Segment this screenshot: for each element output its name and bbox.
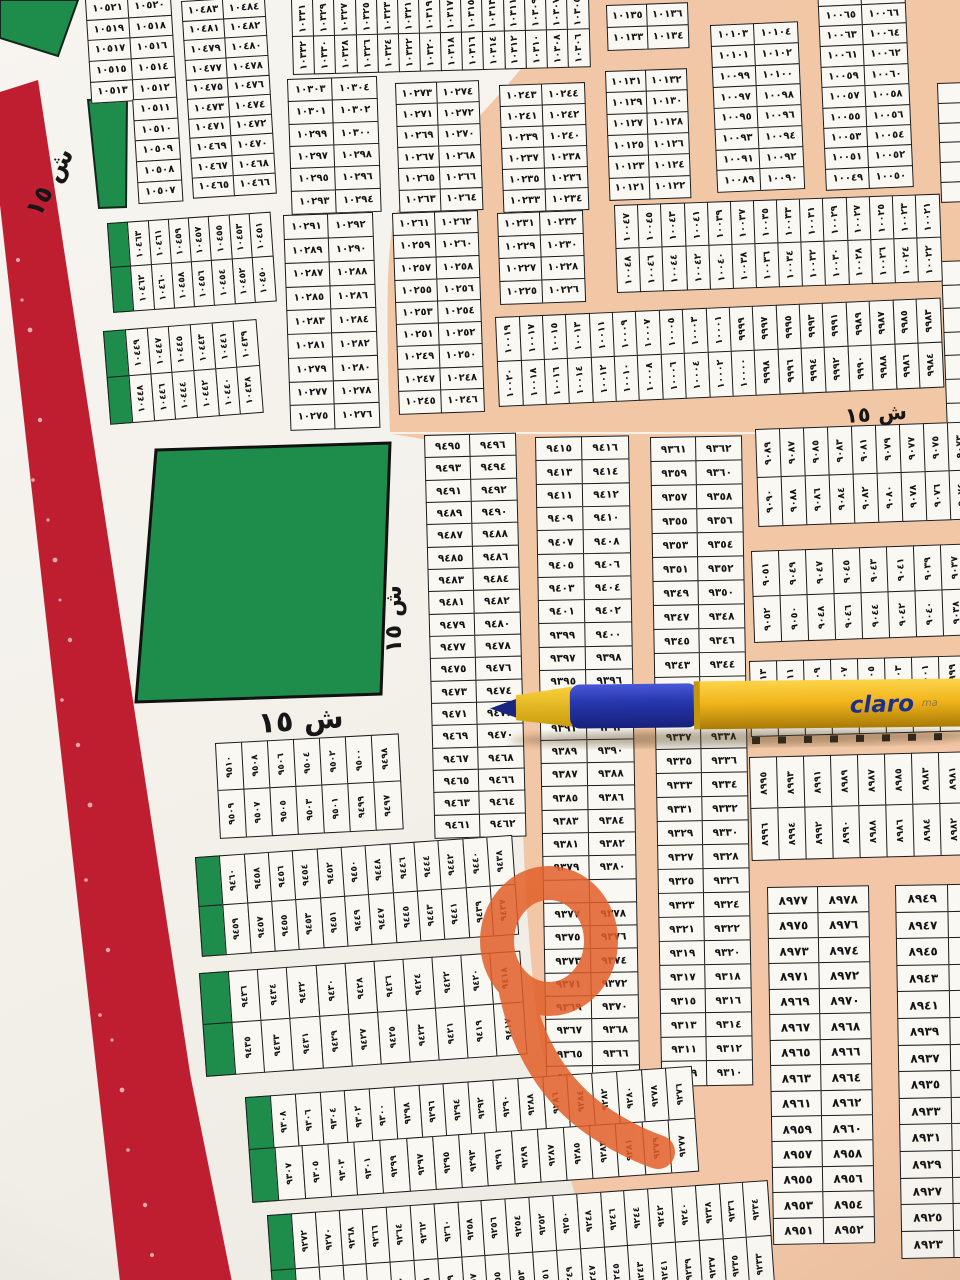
plot-number: ٩٣٩٨	[596, 652, 622, 663]
plot-number: ١٠٢٥٤	[444, 306, 475, 317]
plot-number: ١٠٠٣٢	[809, 249, 820, 278]
plot-number: ٨٩٨٥	[894, 768, 904, 791]
plot-number: ٩٢٩٦	[428, 1100, 439, 1123]
plot-cell: ٩٤٦٧	[432, 746, 479, 771]
plot-number: ٩٣٥٢	[708, 563, 734, 574]
plot-number: ١٠٤٧٩	[190, 44, 221, 56]
plot-cell: ٨٩٩٤	[777, 807, 807, 860]
plot-number: ٩٠٨٨	[789, 489, 799, 513]
plot-number: ١٠٢٤٣	[506, 90, 537, 101]
plot-number: ٩٤٣٣	[273, 1034, 284, 1057]
plot-number: ٩٣٧٤	[601, 955, 627, 966]
plot-cell: ٩٣٨٢	[588, 831, 636, 857]
plot-cell: ١٠٣١٠	[525, 29, 549, 68]
plot-number: ١٠١٢٢	[655, 182, 686, 193]
plot-number: ٩٤٤٠	[471, 852, 482, 875]
plot-cell: ٩٣١٤	[705, 1011, 752, 1037]
plot-cell: ١٠٣٢٧	[333, 0, 357, 37]
plot-cell: ٩٤١٥	[535, 436, 583, 462]
plot-number: ٩٣٧٩	[554, 863, 580, 874]
plot-row: ٩٣١٥٩٣١٦	[661, 988, 751, 1014]
plot-cell: ٩٣٤٤	[699, 652, 746, 678]
plot-number: ٩٢٥٣	[518, 1270, 529, 1280]
plot-number: ٩٤٣١	[302, 1032, 313, 1055]
plot-cell: ٩٤٦٢	[479, 812, 526, 837]
plot-number: ١٠٣١٤	[489, 36, 499, 65]
plot-number: ٩٤٧٩	[439, 620, 465, 631]
plot-number: ١٠٢٧٢	[443, 108, 474, 119]
plot-number: ٩٣٣٤	[712, 779, 738, 790]
plot-cell: ٩٣٦٢	[695, 436, 742, 462]
plot-cell: ٩٣٧٧	[543, 902, 591, 928]
plot-cell: ١٠٣٠٧	[545, 0, 569, 31]
plot-number: ٨٩٨٩	[840, 769, 850, 792]
plot-cell: ٩٤١٢	[582, 482, 630, 508]
plot-number: ١٠٤٧٧	[191, 63, 222, 75]
plot-cell: ٩٠٥١	[751, 550, 781, 598]
plot-number: ٩٠٧٧	[908, 437, 918, 461]
plot-number: ٩٣٣٥	[666, 756, 692, 767]
plot-number: ٩٠٣٩	[923, 557, 933, 581]
plot-cell: ٩٤١٧	[493, 1002, 527, 1057]
strip-10460: ١٠٤٦٣١٠٤٦١١٠٤٥٩١٠٤٥٧١٠٤٥٥١٠٤٥٣١٠٤٥١١٠٤٦٢…	[108, 213, 276, 312]
plot-number: ١٠٢٢٨	[547, 262, 578, 273]
plot-number: ١٠١٣٢	[651, 75, 682, 86]
plot-cell: ٩٣٤٨	[698, 604, 745, 630]
plot-cell: ٩٣٥٤	[697, 532, 744, 558]
plot-number: ٩٤٢٨	[356, 977, 367, 1000]
blank-plot-cell	[944, 355, 960, 381]
plot-number: ٩٤٢٣	[418, 1024, 429, 1047]
plot-number: ٩٣٢٣	[669, 900, 695, 911]
plot-number: ١٠٢٨٠	[340, 363, 371, 374]
plot-number: ٩٣٧١	[556, 979, 582, 990]
plot-cell: ١٠٢٦٣	[399, 188, 442, 212]
plot-number: ٨٩٨١	[948, 766, 958, 789]
plot-number: ٨٩٥٥	[783, 1174, 813, 1187]
plot-cell: ٩٠٤٩	[778, 549, 808, 597]
plot-number: ١٠٠٦٦	[868, 8, 899, 19]
plot-row: ١٠٢٤٥١٠٢٤٦	[399, 389, 484, 414]
plot-cell: ٨٩٢٦	[953, 1202, 960, 1231]
plot-cell: ٨٩٥٤	[822, 1190, 874, 1218]
plot-number: ٨٩٩٢	[814, 821, 824, 844]
plot-number: ١٠١٣٣	[613, 33, 644, 44]
plot-number: ٩٣٤٦	[709, 635, 735, 646]
plot-number: ١٠٢٤٤	[548, 89, 579, 100]
plot-cell: ٨٩٥٦	[822, 1165, 874, 1193]
block-10500: ١٠٥٢١١٠٥٢٠١٠٥١٩١٠٥١٨١٠٥١٧١٠٥١٦١٠٥١٥١٠٥١٤…	[86, 0, 182, 206]
plot-cell: ١٠٣٢٤	[377, 33, 401, 72]
plot-number: ١٠٠٤٢	[693, 253, 704, 282]
plot-number: ٩٢٥٦	[490, 1216, 501, 1239]
plot-cell: ٩٣٧٤	[590, 948, 638, 974]
plot-number: ٩٠٥٢	[763, 607, 773, 631]
block-10280: ١٠٢٩١١٠٢٩٢١٠٢٨٩١٠٢٩٠١٠٢٨٧١٠٢٨٨١٠٢٨٥١٠٢٨٦…	[284, 213, 379, 430]
street-15-right: ش ١٥	[844, 400, 907, 428]
plot-cell: ٩٣٦٧	[545, 1018, 593, 1044]
plot-number: ١٠٠٥٢	[875, 151, 906, 162]
plot-number: ٩٠٤٧	[815, 560, 825, 584]
plot-cell: ٨٩٣٢	[951, 1122, 960, 1151]
plot-cell: ٨٩٤٦	[948, 936, 960, 965]
plot-cell: ٩٣٢١	[659, 916, 706, 942]
plot-number: ١٠٠١٤	[575, 366, 586, 395]
plot-cell: ١٠٥٠٧	[137, 179, 183, 204]
plot-row: ٩٣٦٩٩٣٧٠	[546, 995, 638, 1020]
plot-cell: ٩٣٥٣	[652, 532, 699, 558]
plot-number: ٨٩٤٧	[908, 919, 938, 932]
plot-number: ٩٤٩١	[436, 486, 462, 497]
plot-number: ١٠١٣٤	[653, 31, 684, 42]
plot-number: ١٠٢٥٥	[401, 285, 432, 296]
plot-number: ٨٩٨٣	[921, 767, 931, 790]
plot-number: ١٠٠٩٠	[767, 173, 798, 184]
plot-cell: ١٠٣١٤	[482, 31, 506, 70]
strip-9040: ٩٠٥١٩٠٤٩٩٠٤٧٩٠٤٥٩٠٤٣٩٠٤١٩٠٣٩٩٠٣٧٩٠٥٢٩٠٥٠…	[752, 544, 960, 641]
plot-number: ٩٤١١	[547, 490, 573, 501]
plot-number: ١٠٢٤٢	[549, 110, 580, 121]
plot-row: ٩٤٠١٩٤٠٢	[539, 599, 631, 624]
plot-number: ١٠٣٠٧	[552, 0, 562, 26]
plot-row: ٩٣١٧٩٣١٨	[660, 964, 750, 990]
plot-number: ٩٣٤٩	[663, 588, 689, 599]
plot-cell: ٩٣٢٠	[704, 939, 751, 965]
plot-number: ١٠٠٩٣	[722, 133, 753, 144]
plot-row: ٨٩٩٦٨٩٩٤٨٩٩٢٨٩٩٠٨٩٨٨٨٩٨٦٨٩٨٤٨٩٨٢	[751, 803, 960, 860]
plot-cell: ٩٤١١	[536, 483, 584, 509]
blank-plot-cell	[942, 284, 960, 310]
plot-cell: ١٠٣٢٠	[419, 32, 443, 71]
plot-number: ١٠٢٨٥	[293, 293, 324, 304]
plot-number: ١٠٢٧٤	[442, 87, 473, 98]
plot-row: ٨٩٦٥٨٩٦٦	[771, 1039, 871, 1066]
plot-number: ١٠٢٨٦	[337, 291, 368, 302]
plot-number: ٨٩٢٩	[912, 1158, 942, 1171]
plot-number: ١٠٤٤٣	[198, 333, 209, 361]
plot-row: ١٠٠٤٨١٠٠٤٦١٠٠٤٤١٠٠٤٢١٠٠٤٠١٠٠٣٨١٠٠٣٦١٠٠٣٤…	[617, 238, 942, 292]
plot-cell: ١٠٣١٧	[439, 0, 463, 34]
plot-number: ٩٤١٦	[592, 443, 618, 454]
plot-cell: ٨٩٥١	[773, 1217, 825, 1245]
plot-number: ١٠٣٠٥	[573, 0, 583, 26]
plot-row: ٩٣٢٥٩٣٢٦	[659, 868, 749, 894]
plot-number: ٩٣١٤	[716, 1019, 742, 1030]
plot-number: ١٠٢٧١	[402, 110, 433, 121]
plot-number: ١٠٢٥١	[403, 330, 434, 341]
plot-row: ٩٥٠٩٩٥٠٧٩٥٠٥٩٥٠٣٩٥٠١٩٤٩٩٩٤٩٧	[218, 781, 402, 837]
plot-cell: ٩٣٦٨	[591, 1017, 639, 1043]
plot-cell: ٨٩٧٣	[768, 937, 820, 965]
strip-9450: ٩٤٦٠٩٤٥٨٩٤٥٦٩٤٥٤٩٤٥٢٩٤٥٠٩٤٤٨٩٤٤٦٩٤٤٤٩٤٤٢…	[196, 836, 518, 956]
plot-cell: ٩٠٧٤	[949, 470, 960, 521]
plot-cell: ٩٤١٤	[582, 459, 630, 485]
plot-row: ٩٤١٣٩٤١٤	[536, 460, 628, 485]
plot-cell: ٩٤٩٦	[469, 433, 516, 458]
plot-cell: ٩٣٧٨	[589, 901, 637, 927]
plot-number: ١٠٢٨٨	[337, 268, 368, 279]
plot-row: ٩٤٠٥٩٤٠٦	[538, 553, 630, 578]
plot-number: ٩٢٩٣	[469, 1149, 480, 1172]
plot-number: ٩٢٤٥	[613, 1263, 624, 1280]
plot-number: ٩٣٥٨	[707, 491, 733, 502]
plot-number: ٩٤٥٨	[253, 867, 264, 890]
plot-number: ١٠٠١٨	[529, 368, 540, 397]
plot-number: ١٠٣٠٦	[574, 33, 584, 62]
plot-cell: ٩٣٢٢	[704, 915, 751, 941]
plot-number: ٩٣٥٧	[662, 492, 688, 503]
plot-cell: ٨٩٧٢	[818, 962, 870, 990]
plot-cell: ٩٣٥١	[652, 556, 699, 582]
plot-cell: ٩٤٩٧	[373, 781, 403, 831]
plot-row: ١٠٢٩٣١٠٢٩٤	[292, 189, 381, 214]
plot-cell: ١٠٣١٦	[461, 31, 485, 70]
plot-number: ٩٤٤٢	[447, 853, 458, 876]
plot-number: ١٠٢٩١	[291, 222, 322, 233]
plot-cell: ٩٣٢٧	[657, 844, 704, 870]
plot-row: ٨٩٤٩٨٩٥٠	[896, 884, 960, 912]
plot-cell: ١٠٣٢٨	[334, 34, 358, 73]
plot-number: ١٠٢٦٢	[441, 217, 472, 228]
plot-number: ٩٤٠٤	[595, 583, 621, 594]
plot-number: ١٠٥١٧	[95, 44, 126, 56]
plot-number: ١٠٢٩٢	[335, 220, 366, 231]
plot-number: ١٠٤٦٣	[134, 230, 145, 258]
plot-number: ٨٩٥٤	[834, 1198, 864, 1211]
plot-number: ٩٤٨٢	[484, 596, 510, 607]
plot-number: ٩٣٠٤	[329, 1107, 340, 1130]
plot-number: ١٠٥١٠	[141, 124, 172, 136]
plot-number: ٩٤٨٤	[483, 574, 509, 585]
plot-number: ٩٩٨٩	[854, 312, 865, 336]
plot-number: ٩٠٩٠	[765, 490, 775, 514]
plot-number: ١٠٤٥٢	[238, 267, 249, 295]
plot-number: ٩٣٧٠	[602, 1002, 628, 1013]
plot-number: ٩٢٨٥	[573, 1142, 584, 1165]
plot-number: ٨٩٨٧	[867, 769, 877, 792]
plot-number: ٩٤١٠	[593, 513, 619, 524]
plot-number: ٩٠٤٢	[898, 603, 908, 627]
plot-row: ٩٣٥٥٩٣٥٦	[652, 508, 742, 534]
plot-cell: ٩٣١٦	[705, 987, 752, 1013]
plot-cell: ٨٩٩٠	[831, 805, 861, 858]
plot-number: ٨٩٦٣	[782, 1072, 812, 1085]
plot-number: ٩٤٩٩	[357, 796, 367, 818]
plot-row: ٩٣١١٩٣١٢	[661, 1036, 751, 1062]
plot-cell: ٩٤٨٩	[426, 501, 473, 526]
plot-number: ٩٣٠٨	[280, 1110, 291, 1133]
plot-number: ٩٠٧٨	[909, 485, 919, 509]
blank-plot-cell	[945, 378, 960, 404]
plot-cell: ١٠٤٥٠	[252, 256, 277, 303]
plot-cell: ٩٣١١	[661, 1036, 708, 1062]
plot-cell: ٨٩٤١	[897, 991, 951, 1020]
plot-cell: ٩٤١٦	[581, 436, 629, 462]
plot-number: ٩٠٧٩	[884, 438, 894, 462]
plot-number: ١٠١٢٨	[652, 118, 683, 129]
pen-grip	[570, 683, 698, 728]
plot-cell: ٨٩٦٣	[770, 1064, 822, 1092]
plot-number: ٩٢٦٠	[443, 1220, 454, 1243]
plot-number: ١٠٠٢٨	[855, 247, 866, 276]
plot-cell: ٩٣٨٥	[541, 786, 589, 812]
plot-row: ٩٣٤٣٩٣٤٤	[655, 652, 745, 678]
plot-number: ٩٤٩٣	[435, 463, 461, 474]
plot-cell: ٩٤٧٥	[430, 657, 477, 682]
plot-number: ٩٣١٠	[717, 1067, 743, 1078]
plot-number: ١٠٠٤٨	[624, 255, 635, 284]
plot-number: ٩٤٥٢	[326, 862, 337, 885]
plot-cell: ٩٣٣٤	[701, 772, 748, 798]
plot-row: ٩٣٣١٩٣٣٢	[657, 796, 747, 822]
plot-number: ١٠٤٤٠	[223, 377, 234, 405]
plot-number: ١٠٤٤٧	[154, 337, 165, 365]
plot-number: ١٠٢٧٦	[342, 410, 373, 421]
plot-number: ٩٠٤٥	[842, 559, 852, 583]
plot-number: ٩٤٣٨	[496, 850, 507, 873]
plot-cell: ٩٣٥٠	[698, 580, 745, 606]
plot-number: ٩٤٠١	[549, 607, 575, 618]
plot-number: ١٠٣٠٩	[530, 0, 540, 27]
plot-row: ٩٣٩٧٩٣٩٨	[540, 646, 632, 671]
plot-cell: ٩٠٣٧	[940, 544, 960, 592]
plot-number: ١٠٣١٨	[447, 37, 457, 66]
street-15-mid-vertical: ش ١٥	[381, 585, 407, 653]
plot-number: ١٠٠٩٩	[719, 71, 750, 82]
plot-cell: ١٠٠٨٩	[716, 168, 762, 192]
plot-number: ١٠٥١٦	[136, 42, 167, 54]
plot-number: ٩٤٣٢	[298, 981, 309, 1004]
plot-number: ٩٤٧٨	[485, 641, 511, 652]
plot-number: ١٠٢٨٧	[293, 269, 324, 280]
plot-number: ٩٤٢٤	[414, 973, 425, 996]
plot-number: ١٠٤٤٢	[201, 379, 212, 407]
plot-number: ٩٠٥١	[761, 562, 771, 586]
plot-row: ٨٩٣٧٨٩٣٨	[899, 1044, 960, 1072]
plot-number: ١٠٠٠٩	[620, 320, 631, 349]
plot-cell: ٨٩٤٢	[949, 990, 960, 1019]
plot-number: ٩٣٤٨	[709, 611, 735, 622]
plot-cell: ٩٣٤٩	[653, 580, 700, 606]
plot-number: ١٠٥٠٩	[142, 144, 173, 156]
plot-cell: ٩٢٧٦	[665, 1066, 695, 1121]
plot-number: ١٠٣٢٦	[362, 39, 372, 68]
plot-number: ٩٤١٧	[505, 1018, 516, 1041]
plot-number: ١٠٣١٠	[531, 34, 541, 63]
plot-cell: ١٠٠٥٠	[868, 165, 914, 189]
plot-cell: ٨٩٣٥	[898, 1070, 952, 1099]
plot-row	[942, 261, 960, 285]
plot-row: ٨٩٢٩٨٩٣٠	[901, 1150, 960, 1178]
plot-number: ١٠٠٢٢	[924, 245, 935, 274]
plot-row: ٨٩٦٩٨٩٧٠	[770, 988, 870, 1015]
plot-number: ٨٩٦٤	[832, 1071, 862, 1084]
plot-number: ١٠٢٦٠	[442, 240, 473, 251]
plot-cell: ٩٤٩٤	[470, 455, 517, 480]
plot-number: ٨٩٥٧	[783, 1148, 813, 1161]
plot-cell: ٩٣٣٢	[701, 796, 748, 822]
plot-number: ١٠٣٢٧	[340, 2, 350, 31]
plot-cell: ٨٩٨١	[938, 751, 960, 804]
plot-number: ١٠٢٢٩	[505, 241, 536, 252]
plot-number: ١٠٢٧٧	[297, 388, 328, 399]
plot-number: ١٠٠٥٤	[874, 130, 905, 141]
plot-cell: ٩٣٧١	[544, 972, 592, 998]
plot-number: ٩٢٨٤	[576, 1089, 587, 1112]
plot-number: ٩٩٩٥	[784, 315, 795, 339]
plot-number: ١٠٣٠١	[296, 107, 327, 118]
plot-number: ٩٤٧٧	[440, 642, 466, 653]
plot-number: ٩٤٦٦	[489, 775, 515, 786]
plot-cell: ٩٤٨٧	[426, 523, 473, 548]
plot-number: ٩٤٠٣	[549, 583, 575, 594]
plot-number: ٩٥١٠	[225, 756, 235, 778]
plot-number: ٩٤٢٠	[472, 969, 483, 992]
plot-cell: ٩٣٢٨	[702, 844, 749, 870]
plot-number: ٩٩٨٤	[926, 353, 937, 377]
plot-number: ١٠٢٣٦	[551, 173, 582, 184]
plot-number: ١٠٤٥٧	[195, 226, 206, 254]
plot-number: ١٠٣١٥	[467, 0, 477, 28]
plot-number: ١٠٢٢٧	[506, 264, 537, 275]
plot-row	[938, 83, 960, 104]
plot-number: ٨٩٨٦	[895, 819, 905, 842]
plot-number: ٩٥٠٣	[305, 798, 315, 820]
plot-number: ٩٢٤٢	[657, 1205, 668, 1228]
plot-number: ١٠٤٣٨	[245, 376, 256, 404]
block-8940: ٨٩٤٩٨٩٥٠٨٩٤٧٨٩٤٨٨٩٤٥٨٩٤٦٨٩٤٣٨٩٤٤٨٩٤١٨٩٤٢…	[896, 884, 960, 1258]
plot-cell: ٩٣٤٧	[653, 604, 700, 630]
plot-number: ١٠٢٥٨	[442, 262, 473, 273]
plot-number: ٩٢٧٩	[652, 1136, 663, 1159]
plot-cell: ٩٣١٩	[659, 940, 706, 966]
plot-row: ٩٣٤٧٩٣٤٨	[654, 604, 744, 630]
plot-number: ١٠٣٠٨	[552, 34, 562, 63]
plot-blocks: ١٠٥٢١١٠٥٢٠١٠٥١٩١٠٥١٨١٠٥١٧١٠٥١٦١٠٥١٥١٠٥١٤…	[0, 0, 960, 1280]
plot-cell: ١٠٠٢٢	[916, 237, 942, 283]
plot-cell: ٨٩٦٢	[821, 1089, 873, 1117]
block-9410: ٩٤١٥٩٤١٦٩٤١٣٩٤١٤٩٤١١٩٤١٢٩٤٠٩٩٤١٠٩٤٠٧٩٤٠٨…	[536, 436, 639, 1090]
plot-cell: ٨٩٥٢	[823, 1216, 875, 1244]
plot-cell: ١٠٣١٥	[460, 0, 484, 33]
plot-number: ١٠٤٧٨	[232, 61, 263, 73]
plot-number: ٩٠٤٨	[817, 605, 827, 629]
plot-row: ٨٩٤٥٨٩٤٦	[897, 937, 960, 965]
plot-number: ٩٠٧٥	[932, 436, 942, 460]
plot-cell: ١٠٣٢١	[397, 0, 421, 35]
plot-number: ١٠٠٩٧	[720, 92, 751, 103]
plot-number: ٩٣٠٧	[285, 1162, 296, 1185]
plot-cell: ٩٤٨٦	[472, 544, 519, 569]
plot-number: ٨٩٩٥	[759, 771, 769, 794]
plot-number: ١٠١٣٠	[652, 96, 683, 107]
strip-10330: ١٠٣٣١١٠٣٢٩١٠٣٢٧١٠٣٢٥١٠٣٢٣١٠٣٢١١٠٣١٩١٠٣١٧…	[292, 0, 590, 74]
plot-cell: ٩٤٩٥	[424, 434, 471, 459]
plot-cell: ٩٤٠١	[538, 599, 586, 625]
block-sliver-mid-right	[942, 261, 960, 427]
plot-number: ٨٩٧٥	[779, 919, 809, 932]
plot-number: ١٠٢٦٤	[446, 194, 477, 205]
plot-number: ٩٤٠٩	[548, 514, 574, 525]
plot-number: ٩٤٥١	[329, 911, 340, 934]
plot-cell: ٩٤٦٣	[433, 791, 480, 816]
plot-number: ٩٢٣٧	[708, 1256, 719, 1279]
plot-cell: ٩٤٠٨	[583, 529, 631, 555]
plot-number: ٩٤٠٦	[594, 559, 620, 570]
plot-number: ١٠٤٨٣	[188, 5, 219, 17]
plot-number: ٨٩٧٣	[779, 945, 809, 958]
plot-number: ١٠٠٥٥	[830, 112, 861, 123]
